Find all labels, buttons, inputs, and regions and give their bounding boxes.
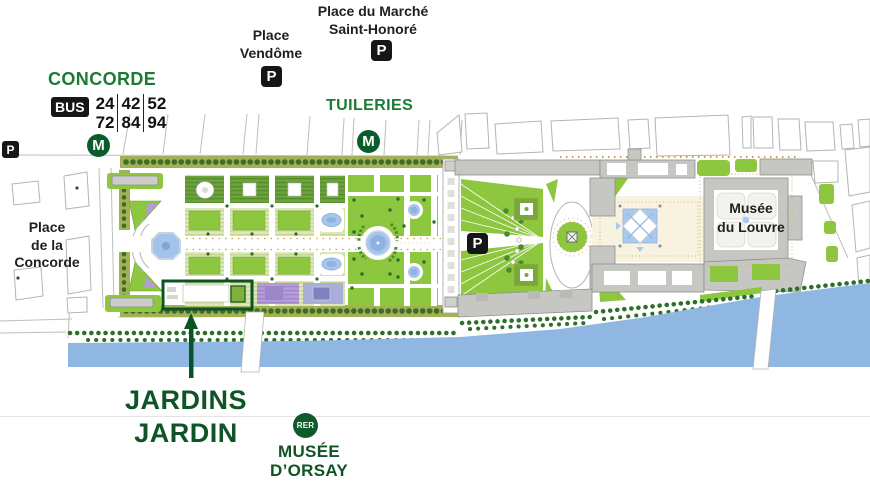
parking-icon: P bbox=[261, 66, 282, 87]
metro-icon: M bbox=[87, 134, 110, 157]
bus-line: 94 bbox=[143, 113, 169, 132]
bus-lines-block: BUS 24 42 52 72 84 94 bbox=[51, 94, 169, 132]
bus-line: 72 bbox=[93, 113, 118, 132]
arc-roundabout bbox=[550, 202, 594, 288]
label-line: MUSÉE bbox=[254, 442, 364, 461]
parking-icon: P bbox=[371, 40, 392, 61]
label-line: Place du Marché bbox=[298, 2, 448, 20]
bus-line-numbers: 24 42 52 72 84 94 bbox=[93, 94, 170, 132]
jeu-de-paume-building bbox=[107, 173, 163, 189]
parking-icon: P bbox=[2, 141, 19, 158]
round-pond bbox=[361, 226, 395, 260]
octagonal-pond bbox=[152, 233, 180, 259]
rer-icon: RER bbox=[293, 413, 318, 438]
orangerie-building bbox=[105, 295, 161, 312]
label-place-du-marche: Place du Marché Saint-Honoré bbox=[298, 2, 448, 38]
label-musee-du-louvre: Musée du Louvre bbox=[705, 199, 797, 236]
station-name-concorde: CONCORDE bbox=[48, 69, 156, 90]
metro-icon: M bbox=[357, 130, 380, 153]
event-title: JARDINS JARDIN bbox=[98, 384, 274, 450]
bus-line: 42 bbox=[117, 94, 143, 113]
event-tent-area bbox=[167, 285, 245, 302]
label-line: Saint-Honoré bbox=[298, 20, 448, 38]
bus-line: 52 bbox=[143, 94, 169, 113]
lemonnier-underpass bbox=[443, 159, 459, 313]
label-place-vendome: Place Vendôme bbox=[226, 26, 316, 62]
label-line: Vendôme bbox=[226, 44, 316, 62]
label-line: Concorde bbox=[1, 254, 93, 272]
label-place-de-la-concorde: Place de la Concorde bbox=[1, 219, 93, 272]
label-line: de la bbox=[1, 237, 93, 255]
event-title-line: JARDIN bbox=[98, 417, 274, 450]
bus-line: 24 bbox=[93, 94, 118, 113]
label-line: du Louvre bbox=[705, 218, 797, 237]
parking-icon: P bbox=[467, 233, 488, 254]
map-page: Place du Marché Saint-Honoré Place Vendô… bbox=[0, 0, 870, 484]
bus-icon: BUS bbox=[51, 97, 89, 117]
station-name-musee-orsay: MUSÉE D’ORSAY bbox=[254, 442, 364, 480]
bus-line: 84 bbox=[117, 113, 143, 132]
label-line: Musée bbox=[705, 199, 797, 218]
label-line: Place bbox=[1, 219, 93, 237]
station-name-tuileries: TUILERIES bbox=[326, 97, 413, 115]
label-line: D’ORSAY bbox=[254, 461, 364, 480]
label-line: Place bbox=[226, 26, 316, 44]
event-title-line: JARDINS bbox=[98, 384, 274, 417]
